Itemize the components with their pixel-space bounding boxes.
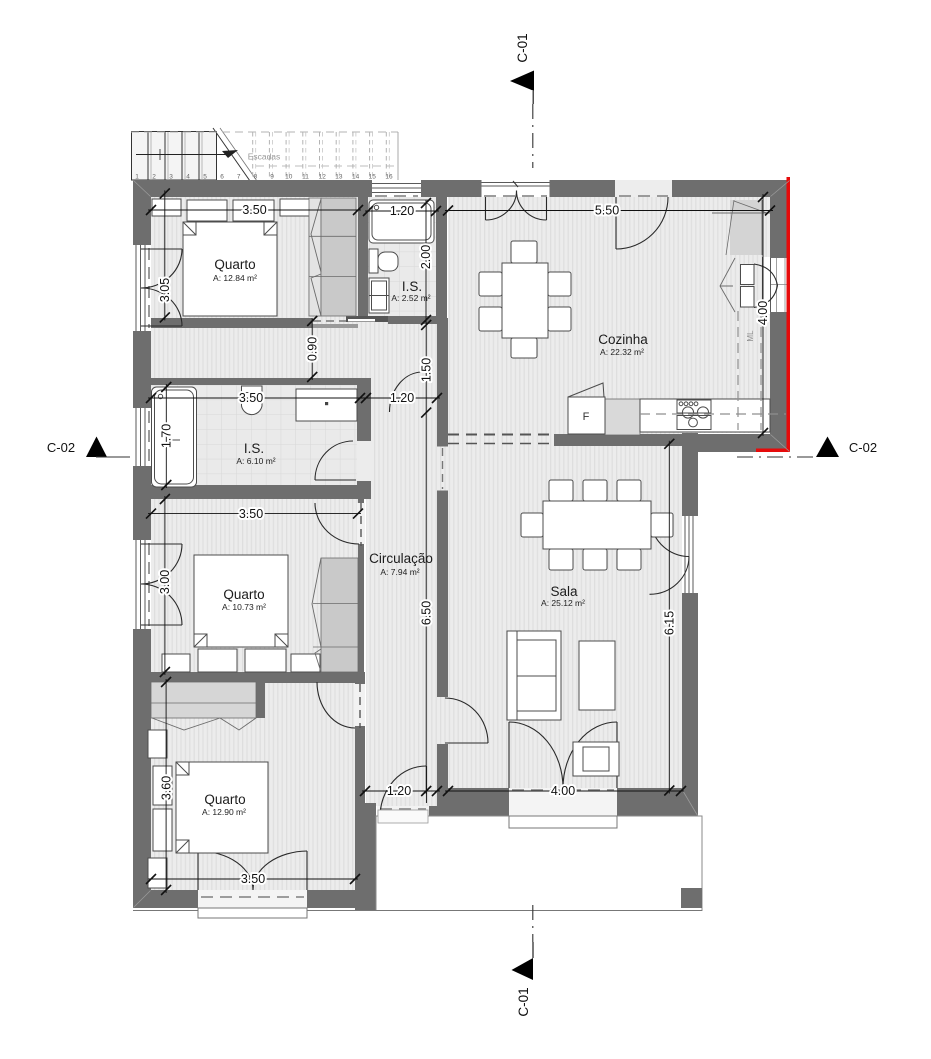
svg-text:C-01: C-01 <box>515 33 530 62</box>
svg-text:3: 3 <box>169 174 173 181</box>
svg-text:3.50: 3.50 <box>239 391 263 405</box>
svg-text:A: 2.52 m²: A: 2.52 m² <box>391 293 430 303</box>
svg-text:2: 2 <box>152 174 156 181</box>
svg-text:A: 12.90 m²: A: 12.90 m² <box>202 807 246 817</box>
svg-text:F: F <box>583 411 590 423</box>
svg-text:6: 6 <box>220 174 224 181</box>
svg-text:C-02: C-02 <box>47 440 75 455</box>
svg-text:Quarto: Quarto <box>214 257 255 272</box>
svg-text:12: 12 <box>319 174 327 181</box>
svg-text:8: 8 <box>254 174 258 181</box>
svg-text:3.05: 3.05 <box>158 278 172 302</box>
svg-text:Circulação: Circulação <box>369 551 433 566</box>
svg-text:1.50: 1.50 <box>419 358 433 382</box>
svg-text:6.15: 6.15 <box>663 611 677 635</box>
svg-text:11: 11 <box>302 174 309 181</box>
svg-text:13: 13 <box>335 174 343 181</box>
svg-text:I.S.: I.S. <box>244 441 264 456</box>
svg-text:3.50: 3.50 <box>241 872 265 886</box>
svg-text:5: 5 <box>203 174 207 181</box>
svg-text:A: 6.10 m²: A: 6.10 m² <box>236 456 275 466</box>
svg-text:A: 22.32 m²: A: 22.32 m² <box>600 347 644 357</box>
svg-text:I.S.: I.S. <box>402 279 422 294</box>
svg-text:16: 16 <box>385 174 393 181</box>
svg-text:3.00: 3.00 <box>158 570 172 594</box>
svg-text:A: 7.94 m²: A: 7.94 m² <box>380 567 419 577</box>
svg-text:1.20: 1.20 <box>390 391 414 405</box>
svg-text:5.50: 5.50 <box>595 204 619 218</box>
svg-text:A: 25.12 m²: A: 25.12 m² <box>541 598 585 608</box>
svg-text:0.90: 0.90 <box>305 337 319 361</box>
svg-text:3.50: 3.50 <box>242 203 266 217</box>
svg-text:4: 4 <box>186 174 190 181</box>
svg-text:A: 12.84 m²: A: 12.84 m² <box>213 273 257 283</box>
svg-text:A: 10.73 m²: A: 10.73 m² <box>222 602 266 612</box>
svg-text:Sala: Sala <box>550 584 578 599</box>
svg-text:3.60: 3.60 <box>159 776 173 800</box>
svg-text:1.20: 1.20 <box>390 204 414 218</box>
svg-text:1.20: 1.20 <box>387 784 411 798</box>
svg-text:Cozinha: Cozinha <box>598 332 648 347</box>
svg-text:Quarto: Quarto <box>204 792 245 807</box>
svg-text:C-02: C-02 <box>849 440 877 455</box>
svg-text:4.00: 4.00 <box>756 301 770 325</box>
svg-text:14: 14 <box>352 174 360 181</box>
svg-text:3.50: 3.50 <box>239 507 263 521</box>
svg-text:6.50: 6.50 <box>419 601 433 625</box>
svg-text:Escadas: Escadas <box>248 152 281 162</box>
svg-text:Quarto: Quarto <box>223 587 264 602</box>
svg-text:2.00: 2.00 <box>419 245 433 269</box>
svg-text:1: 1 <box>135 174 139 181</box>
svg-text:ML: ML <box>746 330 755 342</box>
svg-text:9: 9 <box>270 174 274 181</box>
svg-text:10: 10 <box>285 174 293 181</box>
svg-text:15: 15 <box>369 174 377 181</box>
svg-text:C-01: C-01 <box>516 987 531 1016</box>
svg-text:7: 7 <box>237 174 241 181</box>
svg-text:4.00: 4.00 <box>551 784 575 798</box>
svg-text:1.70: 1.70 <box>160 424 174 448</box>
